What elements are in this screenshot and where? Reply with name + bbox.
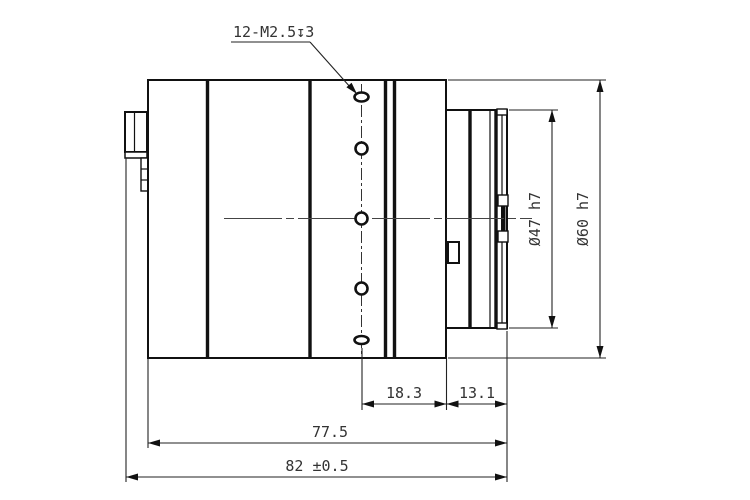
mount-slot-lower bbox=[498, 231, 508, 242]
dim-text-18-3: 18.3 bbox=[386, 384, 422, 402]
arrowhead-right bbox=[435, 401, 447, 408]
rear-tab bbox=[125, 112, 148, 191]
screw-hole bbox=[356, 143, 368, 155]
lens-drawing-svg: 12-M2.5↧3 18.3 13.1 77.5 bbox=[0, 0, 750, 500]
mount-bottom-chamfer bbox=[497, 323, 507, 329]
arrowhead-top bbox=[549, 110, 556, 122]
arrowhead-left bbox=[362, 401, 374, 408]
dim-text-77-5: 77.5 bbox=[312, 423, 348, 441]
mount-slot-upper bbox=[498, 195, 508, 206]
dim-total-length: 82 ±0.5 bbox=[126, 457, 507, 481]
arrowhead-right bbox=[495, 401, 507, 408]
screw-hole-center bbox=[356, 213, 368, 225]
mount-top-chamfer bbox=[497, 109, 507, 115]
dim-text-13-1: 13.1 bbox=[459, 384, 495, 402]
arrowhead-top bbox=[597, 80, 604, 92]
arrowhead-bottom bbox=[549, 316, 556, 328]
screw-hole-bottom bbox=[355, 336, 369, 344]
mount-locating-tab bbox=[448, 242, 459, 263]
arrowhead-bottom bbox=[597, 346, 604, 358]
dim-text-d47: Ø47 h7 bbox=[526, 192, 544, 246]
dim-text-d60: Ø60 h7 bbox=[574, 192, 592, 246]
rear-tab-serration bbox=[141, 158, 148, 191]
technical-drawing-page: 12-M2.5↧3 18.3 13.1 77.5 bbox=[0, 0, 750, 500]
arrowhead-left bbox=[447, 401, 459, 408]
rear-tab-flange bbox=[125, 152, 147, 158]
screw-hole-top bbox=[355, 93, 369, 102]
dim-holes-to-step: 18.3 bbox=[362, 384, 447, 408]
dim-body-diameter: Ø60 h7 bbox=[574, 80, 604, 358]
arrowhead-right bbox=[495, 474, 507, 481]
screw-hole bbox=[356, 283, 368, 295]
arrowhead-right bbox=[495, 440, 507, 447]
thread-callout-label: 12-M2.5↧3 bbox=[233, 23, 314, 41]
dim-mount-length: 13.1 bbox=[447, 384, 508, 408]
arrowhead-left bbox=[126, 474, 138, 481]
dim-text-82: 82 ±0.5 bbox=[285, 457, 348, 475]
rear-tab-body bbox=[125, 112, 147, 152]
dim-flange-diameter: Ø47 h7 bbox=[526, 110, 556, 328]
dim-body-length: 77.5 bbox=[148, 423, 507, 447]
arrowhead-left bbox=[148, 440, 160, 447]
